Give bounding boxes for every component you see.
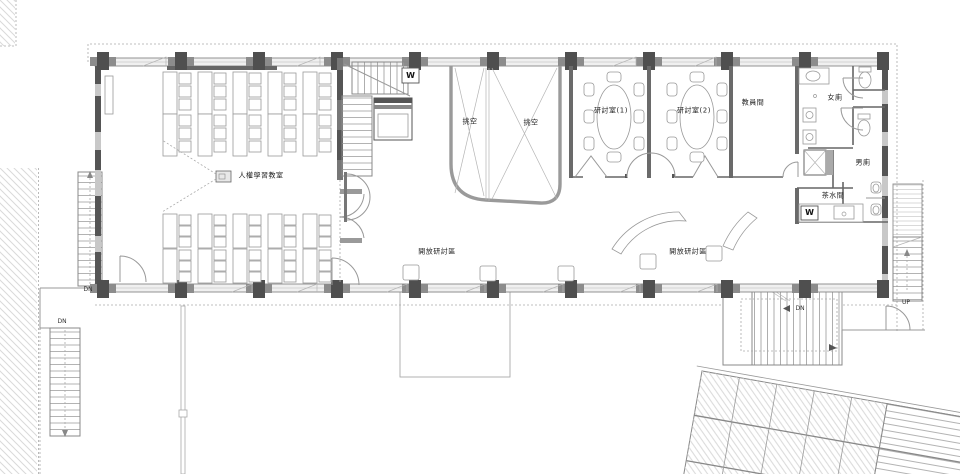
label-womens-toilet: 女廁	[828, 95, 843, 102]
exterior-stair-right-up	[886, 184, 922, 330]
deck-outline	[40, 288, 510, 474]
label-dn-left-lower: DN	[57, 319, 66, 325]
label-dn-left-upper: DN	[83, 287, 92, 293]
seminar-1-table	[584, 72, 644, 162]
label-up-right: UP	[902, 300, 910, 306]
rotated-canopy-structure	[672, 366, 960, 474]
label-classroom: 人權學習教室	[239, 173, 284, 180]
label-seminar-1: 研討室(1)	[594, 108, 628, 115]
classroom-area	[105, 58, 364, 285]
exterior-stair-left-lower	[50, 328, 80, 437]
label-void-2: 挑空	[524, 120, 539, 127]
label-teachers-room: 教員間	[742, 100, 765, 107]
floor-plan: 人權學習教室 挑空 挑空 研討室(1) 研討室(2) 教員間 女廁 男廁 茶水間…	[0, 0, 960, 474]
void-open-to-below	[451, 66, 560, 203]
site-hatch	[0, 0, 39, 474]
label-void-1: 挑空	[463, 119, 478, 126]
w-marker-1: W	[406, 72, 415, 80]
seminar-room-walls	[569, 66, 799, 224]
w-marker-2: W	[805, 209, 814, 217]
label-seminar-2: 研討室(2)	[677, 108, 711, 115]
label-open-discussion-2: 開放研討區	[669, 249, 707, 256]
seminar-2-table	[667, 72, 727, 162]
label-open-discussion-1: 開放研討區	[418, 249, 456, 256]
label-dn-bottom-right: DN	[795, 306, 804, 312]
interior-stair	[342, 62, 410, 222]
open-area-furniture	[403, 212, 757, 281]
label-pantry: 茶水間	[822, 193, 845, 200]
elevator-equipment	[374, 98, 412, 140]
label-mens-toilet: 男廁	[856, 160, 871, 167]
plan-linework	[0, 0, 960, 474]
